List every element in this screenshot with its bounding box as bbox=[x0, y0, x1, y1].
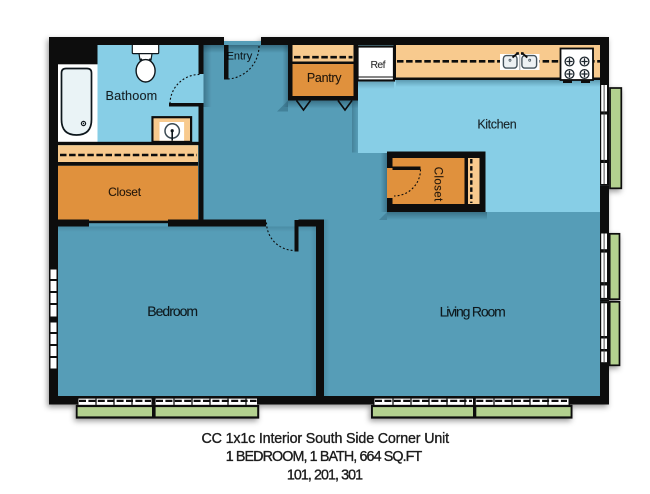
svg-text:Bathoom: Bathoom bbox=[106, 89, 158, 103]
svg-text:Kitchen: Kitchen bbox=[477, 117, 516, 131]
svg-text:Living Room: Living Room bbox=[440, 304, 506, 320]
svg-text:1 BEDROOM, 1 BATH, 664 SQ.FT: 1 BEDROOM, 1 BATH, 664 SQ.FT bbox=[226, 449, 423, 465]
svg-text:101, 201, 301: 101, 201, 301 bbox=[287, 467, 363, 483]
svg-text:Bedroom: Bedroom bbox=[147, 303, 198, 319]
svg-text:CC 1x1c Interior South Side Co: CC 1x1c Interior South Side Corner Unit bbox=[201, 431, 449, 447]
svg-text:Ref: Ref bbox=[371, 60, 386, 71]
svg-text:Entry: Entry bbox=[227, 51, 253, 63]
svg-text:Closet: Closet bbox=[432, 167, 444, 202]
svg-text:Closet: Closet bbox=[108, 185, 142, 199]
svg-text:Pantry: Pantry bbox=[307, 71, 342, 85]
